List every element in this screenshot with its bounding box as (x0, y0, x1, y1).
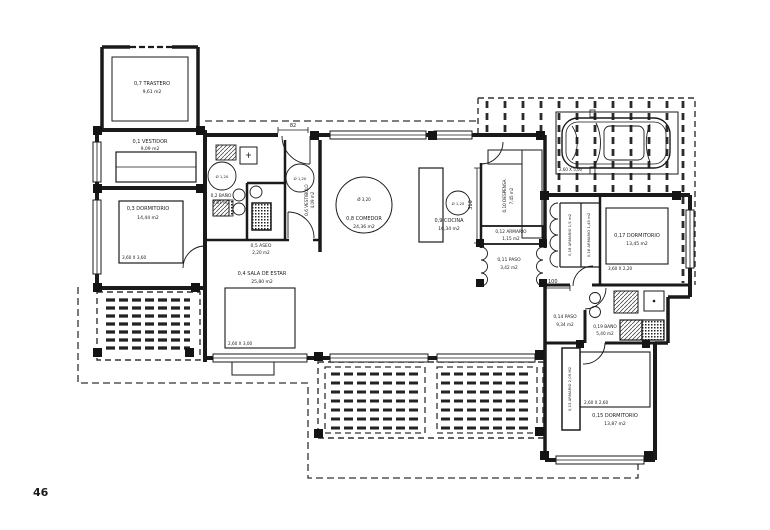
room-bano-02: Ø 1,20 0,2 BAÑO 5,61 m2 (208, 145, 257, 216)
room-label-vestibulo: 0,6 VESTIBULO (304, 184, 309, 216)
floor-plan-page: 2,60 X 5,00 0,7 TRASTERO 9,61 m2 0,1 VES… (0, 0, 770, 530)
parking-bay (556, 112, 678, 174)
area-label-sala: 25,80 m2 (251, 279, 273, 285)
room-label-dormitorio-15: 0,15 DORMITORIO (592, 413, 638, 419)
area-label-vestidor: 9,09 m2 (141, 146, 160, 152)
room-comedor: Ø 3,20 0,8 COMEDOR 24,36 m2 (336, 177, 392, 233)
area-label-vestibulo: 4,09 m2 (310, 191, 315, 208)
room-aseo: 0,5 ASEO 2,20 m2 (250, 186, 272, 255)
circle-label-vestibulo: Ø 1,20 (294, 176, 307, 181)
room-label-comedor: 0,8 COMEDOR (346, 216, 382, 222)
room-dormitorio-03: 0,3 DORMITORIO 14,44 m2 3,60 X 3,60 (119, 201, 205, 268)
bottom-terrace (318, 362, 543, 438)
area-label-despensa: 7,45 m2 (509, 187, 514, 204)
area-label-trastero: 9,61 m2 (143, 89, 162, 95)
room-bano-19: 0,19 BAÑO 5,40 m2 (585, 288, 664, 340)
area-label-dormitorio-03: 14,44 m2 (137, 215, 159, 221)
room-label-paso-14: 0,14 PASO (553, 314, 577, 320)
area-label-aseo: 2,20 m2 (252, 250, 270, 255)
room-label-dormitorio-03: 0,3 DORMITORIO (127, 206, 170, 212)
room-label-armario-16: 0,16 ARMARIO 1,45 m2 (586, 212, 591, 257)
room-label-bano-02: 0,2 BAÑO (211, 192, 232, 199)
page-number: 46 (33, 486, 49, 499)
room-trastero: 0,7 TRASTERO 9,61 m2 (102, 44, 198, 130)
left-deck (97, 292, 200, 360)
room-cocina: Ø 1,20 0,9 COCINA 16,34 m2 310 (419, 168, 480, 243)
area-label-bano-19: 5,40 m2 (596, 331, 614, 336)
room-label-cocina: 0,9 COCINA (434, 218, 464, 224)
room-vestibulo: Ø 1,20 0,6 VESTIBULO 4,09 m2 (286, 164, 315, 238)
room-label-aseo: 0,5 ASEO (251, 243, 272, 249)
room-dormitorio-15: 2,60 X 2,60 0,15 DORMITORIO 13,87 m2 (580, 343, 650, 427)
floor-plan-drawing: 2,60 X 5,00 0,7 TRASTERO 9,61 m2 0,1 VES… (0, 0, 770, 530)
hall-paso-14: 0,14 PASO 9,34 m2 (553, 314, 577, 327)
left-wing-walls (97, 130, 205, 362)
kitchen-depth-dimension: 310 (468, 200, 474, 210)
area-label-paso-14: 9,34 m2 (556, 322, 574, 327)
room-label-dormitorio-17: 0,17 DORMITORIO (614, 233, 660, 239)
room-despensa: 0,10 DESPENSA 7,45 m2 (481, 142, 542, 238)
dim-label-dormitorio-03: 3,60 X 3,60 (122, 255, 147, 260)
circle-label-comedor: Ø 3,20 (357, 197, 371, 202)
room-label-armario-13: 0,13 ARMARIO 2,09 M2 (567, 366, 572, 411)
entrance: 82 (278, 123, 310, 164)
dim-label-dormitorio-17: 3,60 X 2,20 (608, 266, 633, 271)
area-label-dormitorio-15: 13,87 m2 (604, 421, 626, 427)
room-label-paso-11: 0,11 PASO (497, 257, 521, 263)
area-label-comedor: 24,36 m2 (353, 224, 375, 230)
room-label-despensa: 0,10 DESPENSA (502, 179, 507, 212)
room-vestidor: 0,1 VESTIDOR 9,09 m2 (116, 139, 196, 182)
closets-16-18: 0,18 ARMARIO 1,5 m2 0,16 ARMARIO 1,45 m2 (550, 203, 600, 286)
room-label-armario-12: 0,12 ARMARIO (495, 229, 527, 235)
pergola-beams (487, 101, 683, 283)
area-label-cocina: 16,34 m2 (438, 226, 460, 232)
room-label-armario-18: 0,18 ARMARIO 1,5 m2 (567, 213, 572, 256)
room-label-trastero: 0,7 TRASTERO (134, 81, 170, 87)
room-label-bano-19: 0,19 BAÑO (593, 323, 617, 330)
area-label-paso-11: 3,42 m2 (500, 265, 518, 270)
dim-label-sala: 2,60 X 3,00 (228, 341, 253, 346)
dim-label-dormitorio-15: 2,60 X 2,60 (584, 400, 609, 405)
entrance-width-dimension: 82 (290, 123, 296, 129)
circle-label-bano-02: Ø 1,20 (216, 174, 229, 179)
circle-label-cocina: Ø 1,20 (452, 201, 465, 206)
area-label-bano-02: 5,61 m2 (212, 200, 230, 205)
area-label-dormitorio-17: 13,45 m2 (626, 241, 648, 247)
closet-armario-12: 0,12 ARMARIO 1,15 m2 (481, 226, 543, 244)
room-dormitorio-17: 0,17 DORMITORIO 13,45 m2 3,60 X 2,20 (606, 208, 668, 271)
area-label-armario-12: 1,15 m2 (502, 236, 520, 241)
room-label-vestidor: 0,1 VESTIDOR (132, 139, 168, 145)
closet-armario-13: 0,13 ARMARIO 2,09 M2 (562, 348, 580, 430)
room-label-sala: 0,4 SALA DE ESTAR (238, 271, 287, 277)
